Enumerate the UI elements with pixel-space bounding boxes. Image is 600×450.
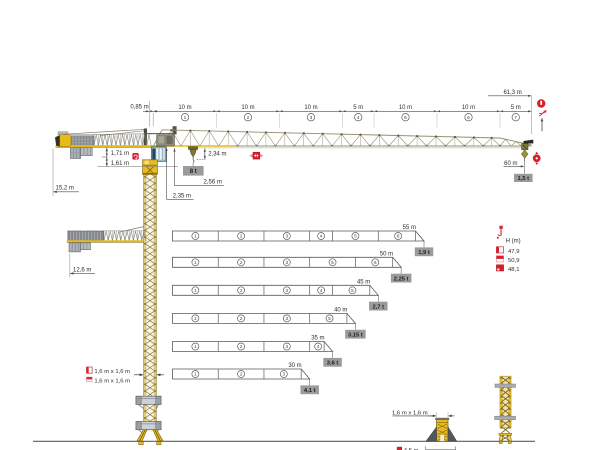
svg-text:1: 1 — [194, 344, 197, 349]
svg-text:2: 2 — [240, 260, 243, 265]
svg-text:40 m: 40 m — [334, 307, 347, 313]
svg-text:2,35 m: 2,35 m — [173, 194, 191, 200]
svg-text:2: 2 — [240, 234, 243, 239]
svg-text:15,2 m: 15,2 m — [56, 185, 74, 191]
svg-text:10 m: 10 m — [399, 105, 412, 111]
svg-text:2,56 m: 2,56 m — [204, 179, 222, 185]
svg-text:4: 4 — [320, 234, 323, 239]
svg-text:4: 4 — [320, 288, 323, 293]
svg-text:2: 2 — [240, 316, 243, 321]
svg-text:5 m: 5 m — [353, 105, 363, 111]
svg-text:1,71 m: 1,71 m — [111, 151, 129, 157]
svg-text:5: 5 — [354, 234, 357, 239]
svg-text:10 m: 10 m — [304, 105, 317, 111]
svg-text:3: 3 — [286, 288, 289, 293]
svg-text:6: 6 — [374, 260, 377, 265]
svg-text:2: 2 — [240, 288, 243, 293]
svg-text:35 m: 35 m — [311, 336, 324, 342]
svg-text:1: 1 — [194, 316, 197, 321]
svg-text:5: 5 — [331, 260, 334, 265]
svg-text:1,5 t: 1,5 t — [517, 176, 529, 182]
svg-text:1: 1 — [194, 288, 197, 293]
svg-text:1,6 m x 1,6 m: 1,6 m x 1,6 m — [94, 369, 130, 375]
svg-text:2,25 t: 2,25 t — [394, 277, 409, 283]
svg-text:48,1: 48,1 — [508, 267, 519, 273]
svg-text:1: 1 — [194, 260, 197, 265]
svg-text:2: 2 — [240, 372, 243, 377]
svg-text:3: 3 — [283, 372, 286, 377]
svg-text:1,6 m x 1,6 m: 1,6 m x 1,6 m — [94, 378, 130, 384]
svg-text:3,6 t: 3,6 t — [327, 361, 339, 367]
svg-text:47,9: 47,9 — [508, 249, 519, 255]
svg-text:4: 4 — [357, 115, 360, 121]
svg-text:50,9: 50,9 — [508, 258, 519, 264]
svg-text:5 m: 5 m — [511, 105, 521, 111]
svg-text:12,6 m: 12,6 m — [73, 268, 91, 274]
svg-text:1: 1 — [194, 234, 197, 239]
svg-text:6: 6 — [467, 115, 470, 121]
svg-text:55 m: 55 m — [403, 225, 416, 231]
svg-text:1,9 t: 1,9 t — [418, 250, 430, 256]
svg-text:8 t: 8 t — [190, 169, 197, 175]
svg-text:H (m): H (m) — [506, 238, 521, 244]
svg-text:0,85 m: 0,85 m — [130, 105, 148, 111]
svg-text:1: 1 — [194, 372, 197, 377]
svg-text:6: 6 — [397, 234, 400, 239]
svg-text:45 m: 45 m — [357, 279, 370, 285]
svg-text:4: 4 — [317, 344, 320, 349]
svg-text:1,61 m: 1,61 m — [111, 161, 129, 167]
svg-text:3,15 t: 3,15 t — [348, 333, 363, 339]
svg-text:2,34 m: 2,34 m — [208, 151, 226, 157]
svg-text:10 m: 10 m — [241, 105, 254, 111]
svg-text:10 m: 10 m — [178, 105, 191, 111]
svg-text:3: 3 — [286, 316, 289, 321]
svg-text:7: 7 — [514, 115, 517, 121]
svg-text:3: 3 — [286, 344, 289, 349]
svg-text:5: 5 — [404, 115, 407, 121]
svg-text:2: 2 — [240, 344, 243, 349]
svg-text:2,7 t: 2,7 t — [372, 305, 384, 311]
svg-text:4,1 t: 4,1 t — [304, 388, 316, 394]
svg-text:10 m: 10 m — [462, 105, 475, 111]
svg-text:3: 3 — [286, 260, 289, 265]
svg-text:2: 2 — [247, 115, 250, 121]
svg-text:5: 5 — [351, 288, 354, 293]
svg-text:30 m: 30 m — [288, 363, 301, 369]
svg-text:5: 5 — [328, 316, 331, 321]
svg-text:60 m: 60 m — [504, 161, 517, 167]
svg-text:3: 3 — [310, 115, 313, 121]
svg-text:1: 1 — [184, 115, 187, 121]
svg-text:61,3 m: 61,3 m — [503, 90, 521, 96]
svg-text:50 m: 50 m — [380, 251, 393, 257]
svg-text:3: 3 — [286, 234, 289, 239]
